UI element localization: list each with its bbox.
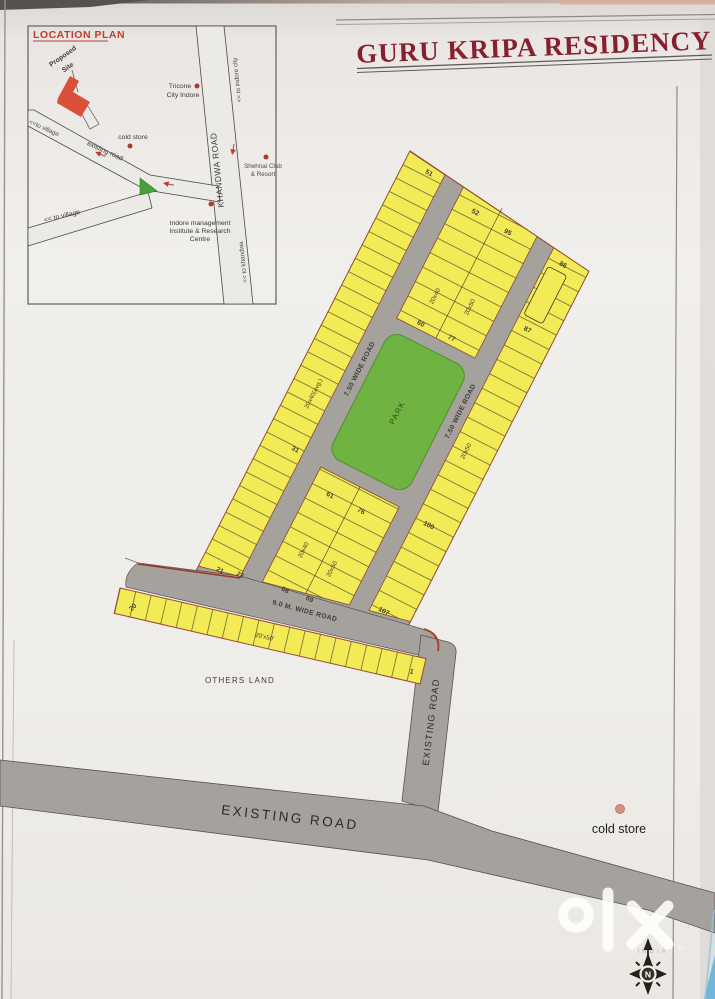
- location-plan-heading: LOCATION PLAN: [33, 29, 125, 41]
- shehnai-label-1: Shehnai Club: [244, 163, 282, 170]
- shehnai-label-2: & Resort: [251, 171, 276, 178]
- cold-store-inset-dot: [128, 144, 133, 149]
- shehnai-dot: [264, 155, 269, 160]
- institute-label-3: Centre: [190, 236, 211, 243]
- tricone-dot: [195, 84, 200, 89]
- photo-top-right-tint: [560, 0, 715, 5]
- cold-store-inset-label: cold store: [118, 134, 148, 141]
- scanned-site-plan-photo: GURU KRIPA RESIDENCY LOCATION PLAN Propo…: [0, 0, 715, 999]
- institute-label-2: Institute & Research: [169, 228, 230, 235]
- others-land-label: OTHERS LAND: [205, 676, 275, 685]
- tricone-label-2: City Indore: [167, 92, 200, 99]
- watermark-country-label: INDIA: [637, 949, 668, 955]
- site-plan-canvas: GURU KRIPA RESIDENCY LOCATION PLAN Propo…: [0, 0, 715, 999]
- paper-right-edge: [700, 0, 715, 999]
- tricone-label-1: Tricone: [169, 83, 192, 90]
- cold-store-dot: [616, 805, 625, 814]
- compass-north-label: N: [645, 970, 651, 980]
- institute-label-1: Indore management: [170, 220, 231, 227]
- cold-store-label: cold store: [592, 822, 646, 836]
- institute-dot: [209, 202, 214, 207]
